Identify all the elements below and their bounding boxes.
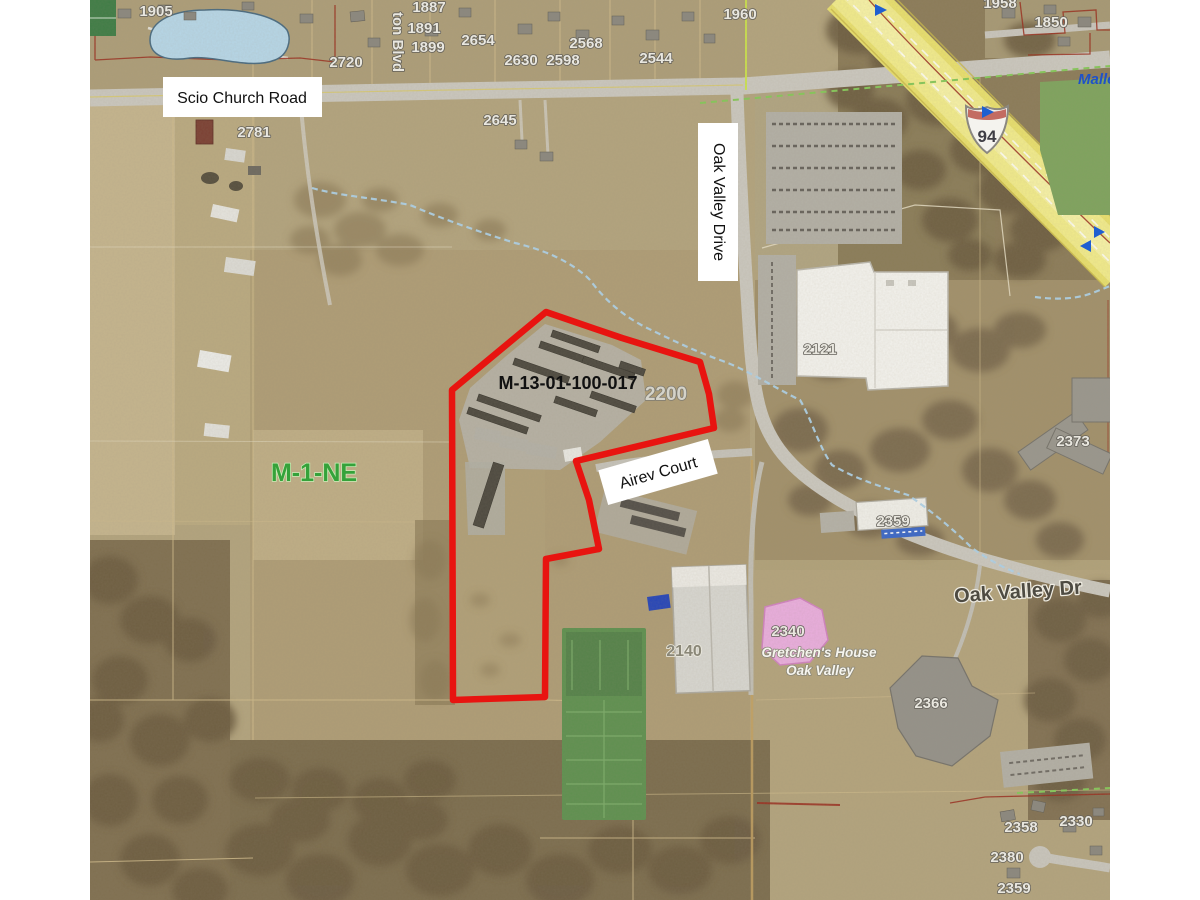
parcel-number-2340: 2340	[771, 623, 804, 640]
parcel-number-1960: 1960	[723, 6, 756, 23]
parcel-number-2140: 2140	[666, 643, 702, 660]
zoning-label-m1ne: M-1-NE	[271, 459, 357, 487]
parcel-number-2366: 2366	[914, 695, 947, 712]
parcel-number-2630: 2630	[504, 52, 537, 69]
subject-parcel-id-label: M-13-01-100-017	[498, 373, 637, 393]
parcel-number-2380: 2380	[990, 849, 1023, 866]
parcel-number-1958: 1958	[983, 0, 1016, 12]
parcel-number-2358: 2358	[1004, 819, 1037, 836]
street-label-blvd: ton Blvd	[389, 12, 406, 72]
i94-number: 94	[978, 127, 997, 146]
aerial-parcel-map[interactable]: 1905 1887 1891 1899 2654 2630 2598 2568 …	[0, 0, 1200, 900]
business-label-line2: Oak Valley	[786, 663, 855, 678]
creek-name-label: Malle	[1078, 71, 1116, 88]
parcel-number-2654: 2654	[461, 32, 495, 49]
parcel-number-1887: 1887	[412, 0, 445, 16]
parcel-number-2645: 2645	[483, 112, 516, 129]
parcel-number-2200: 2200	[645, 384, 687, 405]
parcel-number-2359b: 2359	[997, 880, 1030, 897]
parcel-number-2720: 2720	[329, 54, 362, 71]
parcel-number-2330: 2330	[1059, 813, 1092, 830]
business-label-line1: Gretchen's House	[762, 645, 877, 660]
annotation-scio-church-road: Scio Church Road	[163, 77, 322, 117]
parcel-number-2373: 2373	[1056, 433, 1089, 450]
scio-church-road-label: Scio Church Road	[177, 90, 307, 107]
parcel-number-1891: 1891	[407, 20, 440, 37]
map-canvas: 1905 1887 1891 1899 2654 2630 2598 2568 …	[0, 0, 1200, 900]
annotation-oak-valley-drive: Oak Valley Drive	[698, 123, 738, 281]
parcel-number-1905: 1905	[139, 3, 172, 20]
parcel-number-2781: 2781	[237, 124, 270, 141]
oak-valley-drive-label: Oak Valley Drive	[710, 143, 727, 261]
parcel-number-2568: 2568	[569, 35, 602, 52]
parcel-number-2544: 2544	[639, 50, 673, 67]
parcel-number-1899: 1899	[411, 39, 444, 56]
parcel-number-2121: 2121	[803, 341, 836, 358]
parcel-number-2598: 2598	[546, 52, 579, 69]
parcel-number-1850: 1850	[1034, 14, 1067, 31]
parcel-number-2359: 2359	[876, 513, 909, 530]
